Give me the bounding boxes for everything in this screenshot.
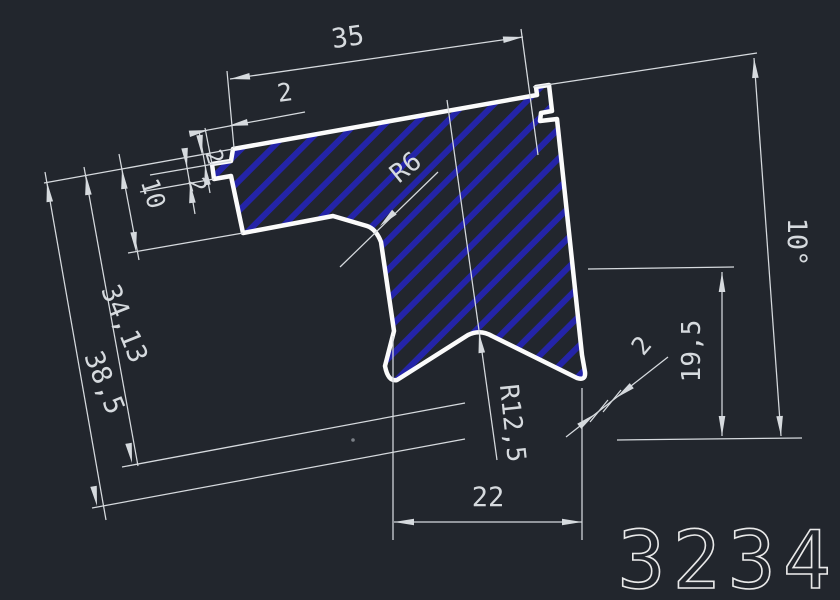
- ext-bottom-plane: [617, 438, 802, 440]
- arrowhead: [776, 416, 783, 436]
- dim-lip-thickness-label: 2: [626, 330, 658, 360]
- dimline-depth-total: [45, 172, 106, 520]
- dim-tilt-angle-label: 10°: [781, 218, 812, 267]
- arrowhead: [196, 135, 203, 155]
- arrowhead: [577, 414, 595, 429]
- dim-top-width-label: 35: [330, 20, 367, 55]
- arrowhead: [47, 182, 54, 202]
- arrowhead: [125, 443, 132, 463]
- dimline-tilt-angle: [754, 58, 781, 436]
- arrowhead: [85, 175, 92, 195]
- arrowhead: [121, 169, 128, 189]
- tick-lip-thickness-1: [603, 390, 621, 412]
- tick-lip-thickness-2: [590, 400, 608, 422]
- arrowhead: [130, 232, 137, 252]
- ext-mid-depth-plane: [122, 403, 465, 467]
- dim-top-step-label: 2: [275, 77, 294, 108]
- arrowhead: [562, 519, 582, 526]
- part-number-label: 3234: [617, 514, 838, 600]
- ext-right-drop-top: [588, 267, 734, 269]
- ext-flange-bottom-plane: [128, 233, 243, 253]
- arrowhead: [503, 37, 523, 44]
- dim-step2-label: 2: [182, 175, 211, 196]
- part-outline-and-section-hatch: [212, 85, 585, 380]
- arrowhead: [752, 58, 759, 78]
- ext-angle-leg: [533, 53, 757, 87]
- cad-drawing: 352221034,1338,5R6R12,52219,5210° 3234: [0, 0, 840, 600]
- arrowhead: [479, 333, 486, 353]
- arrowhead: [719, 416, 726, 436]
- dim-flange-depth-label: 10: [135, 175, 172, 212]
- dimline-top-width: [230, 37, 523, 79]
- ext-top-width-left: [227, 71, 234, 148]
- point-marker: [351, 438, 355, 442]
- arrowhead: [394, 519, 414, 526]
- arrowhead: [719, 272, 726, 292]
- arrowhead: [616, 383, 634, 398]
- dim-arch-radius-label: R12,5: [493, 383, 531, 464]
- dimline-top-step: [192, 112, 305, 133]
- cad-drawing-canvas: 352221034,1338,5R6R12,52219,5210° 3234: [0, 0, 840, 600]
- ext-total-depth-plane: [92, 439, 465, 508]
- arrowhead: [90, 486, 97, 506]
- dim-right-drop-label: 19,5: [677, 320, 707, 383]
- arrowhead: [230, 73, 250, 80]
- dim-base-span-label: 22: [472, 482, 505, 513]
